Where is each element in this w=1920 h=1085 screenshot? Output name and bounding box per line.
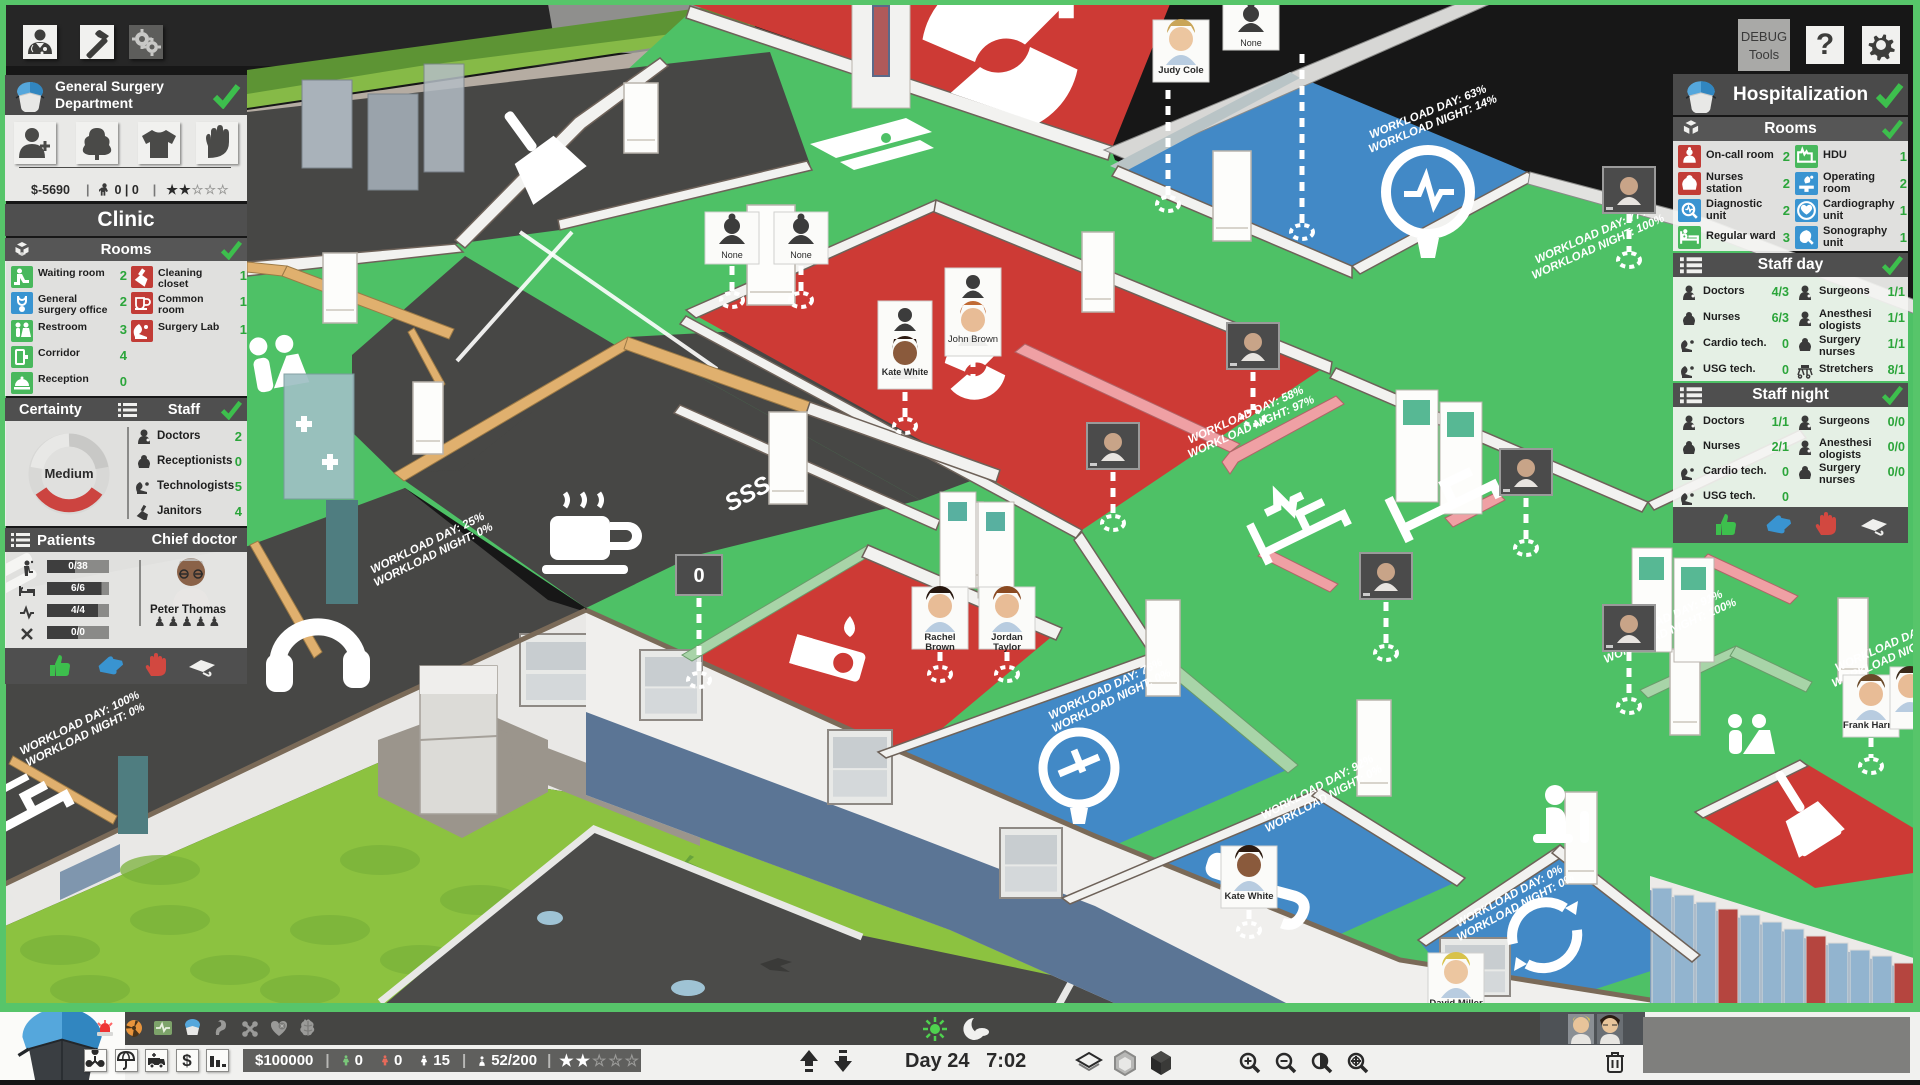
svg-text:John Brown: John Brown (948, 334, 998, 345)
svg-text:None: None (790, 250, 812, 260)
svg-text:$: $ (182, 1051, 192, 1070)
svg-text:Brown: Brown (925, 642, 955, 653)
svg-text:Judy Cole: Judy Cole (1158, 65, 1203, 76)
svg-text:Kate White: Kate White (1224, 891, 1273, 902)
svg-text:Kate White: Kate White (882, 367, 929, 377)
svg-text:Taylor: Taylor (993, 642, 1021, 653)
svg-text:None: None (1240, 38, 1262, 48)
svg-text:None: None (721, 250, 743, 260)
svg-text:0: 0 (693, 565, 704, 587)
svg-text:Medium: Medium (44, 466, 93, 481)
